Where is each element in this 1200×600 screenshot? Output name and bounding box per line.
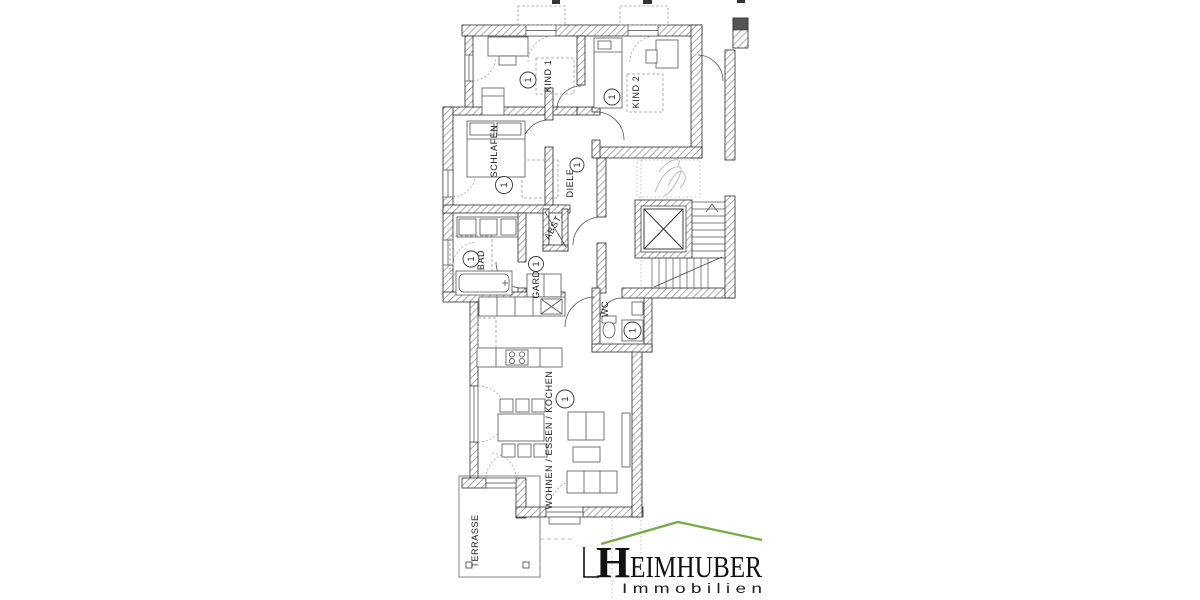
room-label-wohnen: WOHNEN / ESSEN / KOCHEN [544,371,554,510]
bathtub [456,271,512,295]
svg-text:1: 1 [560,396,570,401]
sofa [567,471,617,493]
scanned-floorplan-page: KIND 1 KIND 2 SCHLAFEN DIELE ABST. BAD G… [0,0,1200,600]
window [443,170,453,197]
cut-walls-top [552,0,745,4]
awnings-dashed [518,6,668,25]
desk [488,37,528,65]
kitchen-counter-sink [479,297,565,316]
room-label-kind2: KIND 2 [631,76,641,109]
toilet [602,316,616,338]
floorplan-drawing: KIND 1 KIND 2 SCHLAFEN DIELE ABST. BAD G… [0,0,1200,600]
room-label-gard: GARD. [531,267,541,299]
coffee-table [573,447,600,462]
sofa [568,412,604,440]
heimhuber-logo: H EIMHUBER I m m o b i l i e n [584,522,762,596]
room-label-wc: WC [600,301,610,317]
vanity [457,217,518,237]
window [443,240,453,265]
desk [646,40,678,68]
room-label-diele: DIELE [565,168,575,197]
kitchen-counter-stove [477,348,562,367]
tv-board [622,413,630,467]
terrace-french-door [470,386,478,442]
svg-text:1: 1 [572,162,582,167]
logo-subtitle: I m m o b i l i e n [622,580,762,596]
unit-marker: 1 [604,89,620,105]
room-label-terrasse: TERRASSE [470,514,480,567]
room-label-kind1: KIND 1 [543,60,553,93]
window [628,25,658,36]
bed-kind1 [482,88,504,115]
svg-text:1: 1 [607,94,617,99]
unit-marker: 1 [529,257,544,272]
svg-text:1: 1 [466,256,476,261]
window [465,55,473,81]
sketch-scribble [655,160,685,196]
logo-brand-rest: EIMHUBER [630,549,762,584]
dining-table [498,414,544,441]
sink [632,302,643,315]
unit-marker: 1 [520,72,536,88]
wall-cap [733,18,748,30]
unit-marker: 1 [463,251,479,267]
unit-marker: 1 [624,322,641,339]
unit-marker: 1 [556,390,574,408]
svg-text:1: 1 [523,77,533,82]
elevator-shaft [635,200,692,258]
terrace-door-opening [486,478,516,488]
window [526,25,556,36]
svg-text:1: 1 [628,328,638,333]
svg-text:1: 1 [499,182,509,187]
unit-marker: 1 [496,177,513,194]
unit-marker: 1 [570,158,584,172]
room-label-schlafen: SCHLAFEN [489,125,499,178]
svg-text:1: 1 [531,261,541,266]
